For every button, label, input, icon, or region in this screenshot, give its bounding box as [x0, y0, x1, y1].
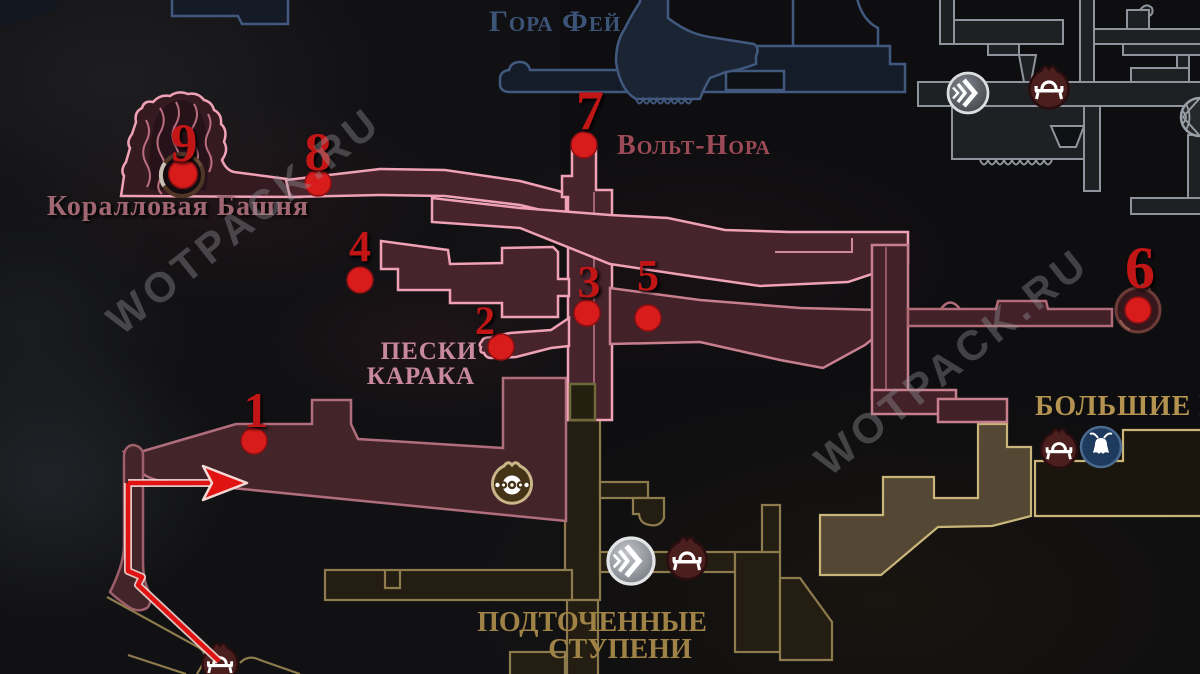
svg-text:КАРАКА: КАРАКА [367, 363, 476, 390]
svg-text:5: 5 [637, 251, 659, 300]
svg-text:Вольт-Нора: Вольт-Нора [617, 130, 771, 161]
svg-text:СТУПЕНИ: СТУПЕНИ [548, 634, 692, 665]
svg-text:4: 4 [349, 222, 371, 271]
svg-text:6: 6 [1125, 235, 1155, 301]
svg-text:3: 3 [578, 256, 601, 307]
svg-text:1: 1 [244, 382, 269, 438]
svg-text:Гора Фей: Гора Фей [489, 5, 621, 38]
svg-text:9: 9 [171, 113, 198, 173]
svg-text:7: 7 [576, 80, 604, 142]
svg-text:2: 2 [475, 298, 495, 343]
svg-text:ПЕСКИ: ПЕСКИ [381, 338, 478, 365]
svg-text:БОЛЬШИЕ ВОРОТА: БОЛЬШИЕ ВОРОТА [1035, 391, 1200, 422]
